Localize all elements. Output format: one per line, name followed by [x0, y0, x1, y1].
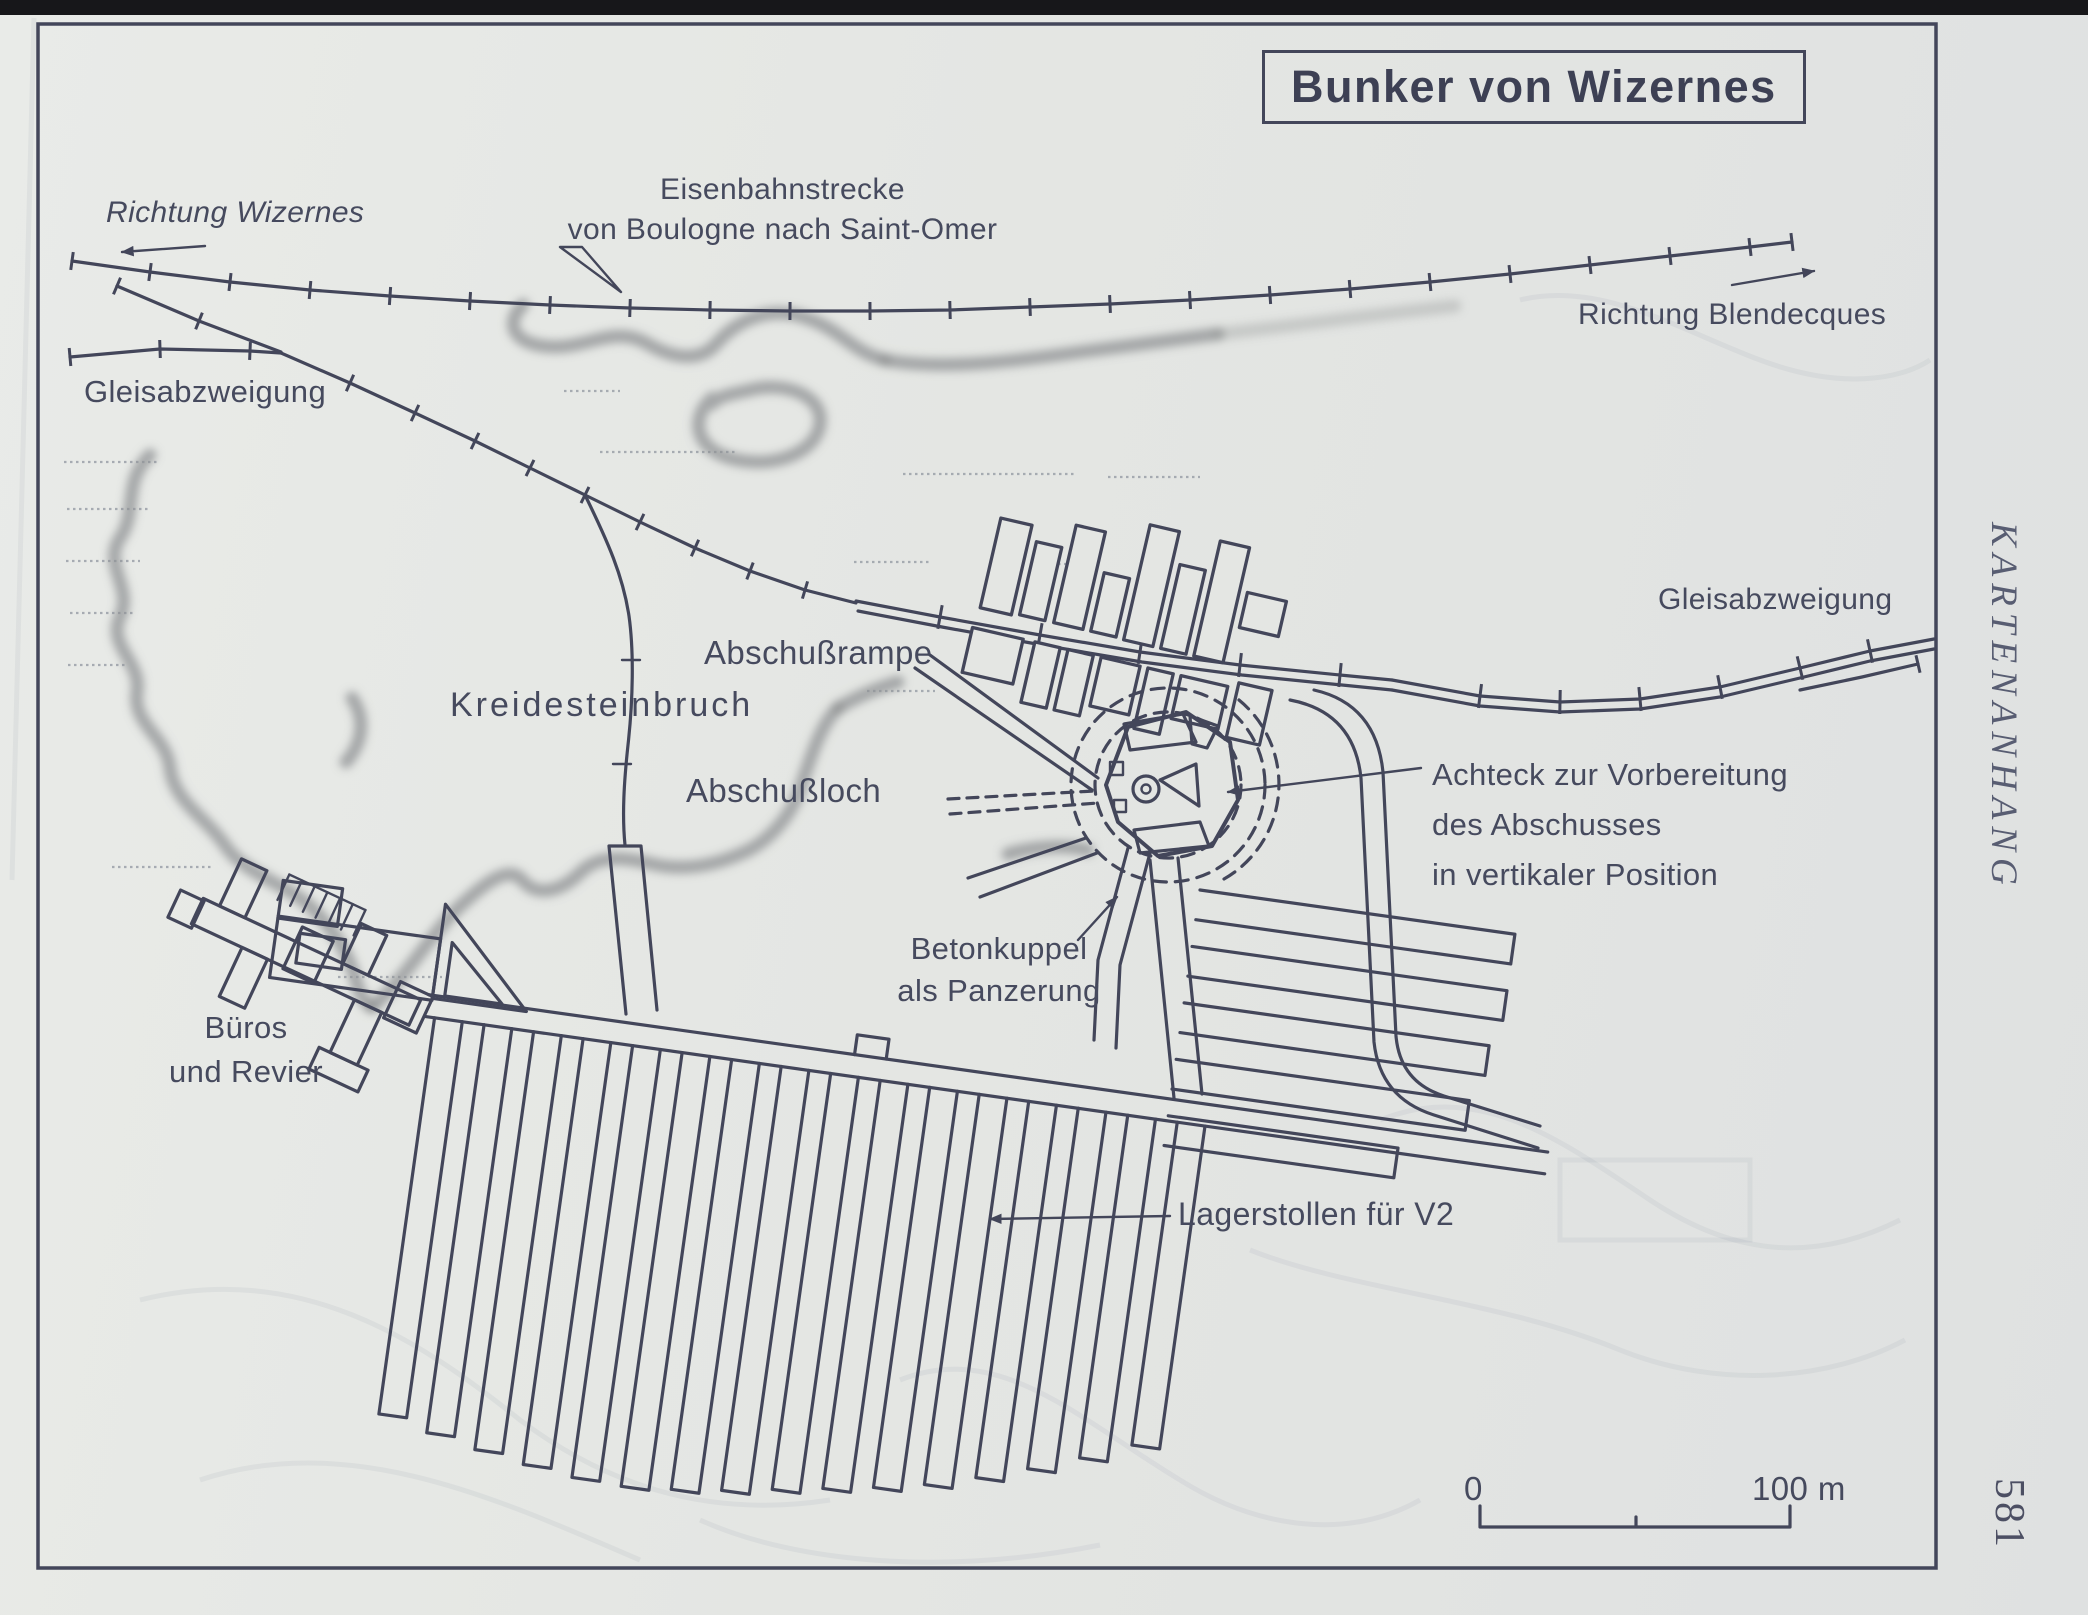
label-offices: Büros und Revier — [136, 1006, 356, 1094]
map-title: Bunker von Wizernes — [1262, 50, 1806, 124]
label-offices-line1: Büros — [136, 1006, 356, 1050]
scale-end-value: 100 m — [1752, 1470, 1846, 1508]
label-dome-line1: Betonkuppel — [868, 928, 1130, 970]
launch-hole-keyhole — [1133, 776, 1159, 802]
scale-bar — [1480, 1506, 1790, 1527]
label-railway-line1: Eisenbahnstrecke — [545, 170, 1020, 210]
railway-callout-wedge — [560, 247, 621, 292]
label-branch-right: Gleisabzweigung — [1658, 583, 1892, 617]
margin-heading: KARTENANHANG — [1982, 522, 2025, 892]
label-launch-hole: Abschußloch — [686, 772, 881, 810]
page-number: 581 — [1985, 1478, 2033, 1550]
scanned-book-page: Bunker von Wizernes Richtung Wizernes Ei… — [0, 0, 2088, 1615]
railway-branch-right — [1392, 639, 1934, 712]
label-launch-ramp: Abschußrampe — [704, 634, 933, 672]
label-storage: Lagerstollen für V2 — [1178, 1196, 1454, 1233]
arrow-east-icon — [1732, 271, 1814, 285]
label-octagon-line2: des Abschusses — [1432, 800, 1788, 850]
railway-branch-left — [70, 286, 856, 603]
label-railway-line2: von Boulogne nach Saint-Omer — [545, 210, 1020, 250]
label-direction-west: Richtung Wizernes — [106, 196, 364, 230]
direction-arrows — [122, 246, 1814, 285]
label-branch-left: Gleisabzweigung — [84, 374, 326, 410]
quarry-feeder-line — [585, 495, 657, 1014]
label-railway: Eisenbahnstrecke von Boulogne nach Saint… — [545, 170, 1020, 250]
label-dome: Betonkuppel als Panzerung — [868, 928, 1130, 1012]
scale-start-value: 0 — [1464, 1470, 1483, 1508]
main-railway-line — [72, 242, 1792, 311]
label-offices-line2: und Revier — [136, 1050, 356, 1094]
label-octagon-line1: Achteck zur Vorbereitung — [1432, 750, 1788, 800]
storage-tunnels — [374, 1018, 1205, 1560]
arrow-west-icon — [122, 246, 205, 252]
label-direction-east: Richtung Blendecques — [1578, 298, 1886, 332]
label-chalk-quarry: Kreidesteinbruch — [450, 686, 753, 725]
quarry-shaft — [609, 846, 657, 1014]
octagon-callout-arrow-icon — [1228, 768, 1421, 792]
label-octagon: Achteck zur Vorbereitung des Abschusses … — [1432, 750, 1788, 900]
label-octagon-line3: in vertikaler Position — [1432, 850, 1788, 900]
label-dome-line2: als Panzerung — [868, 970, 1130, 1012]
buildings-cluster — [959, 491, 1303, 757]
